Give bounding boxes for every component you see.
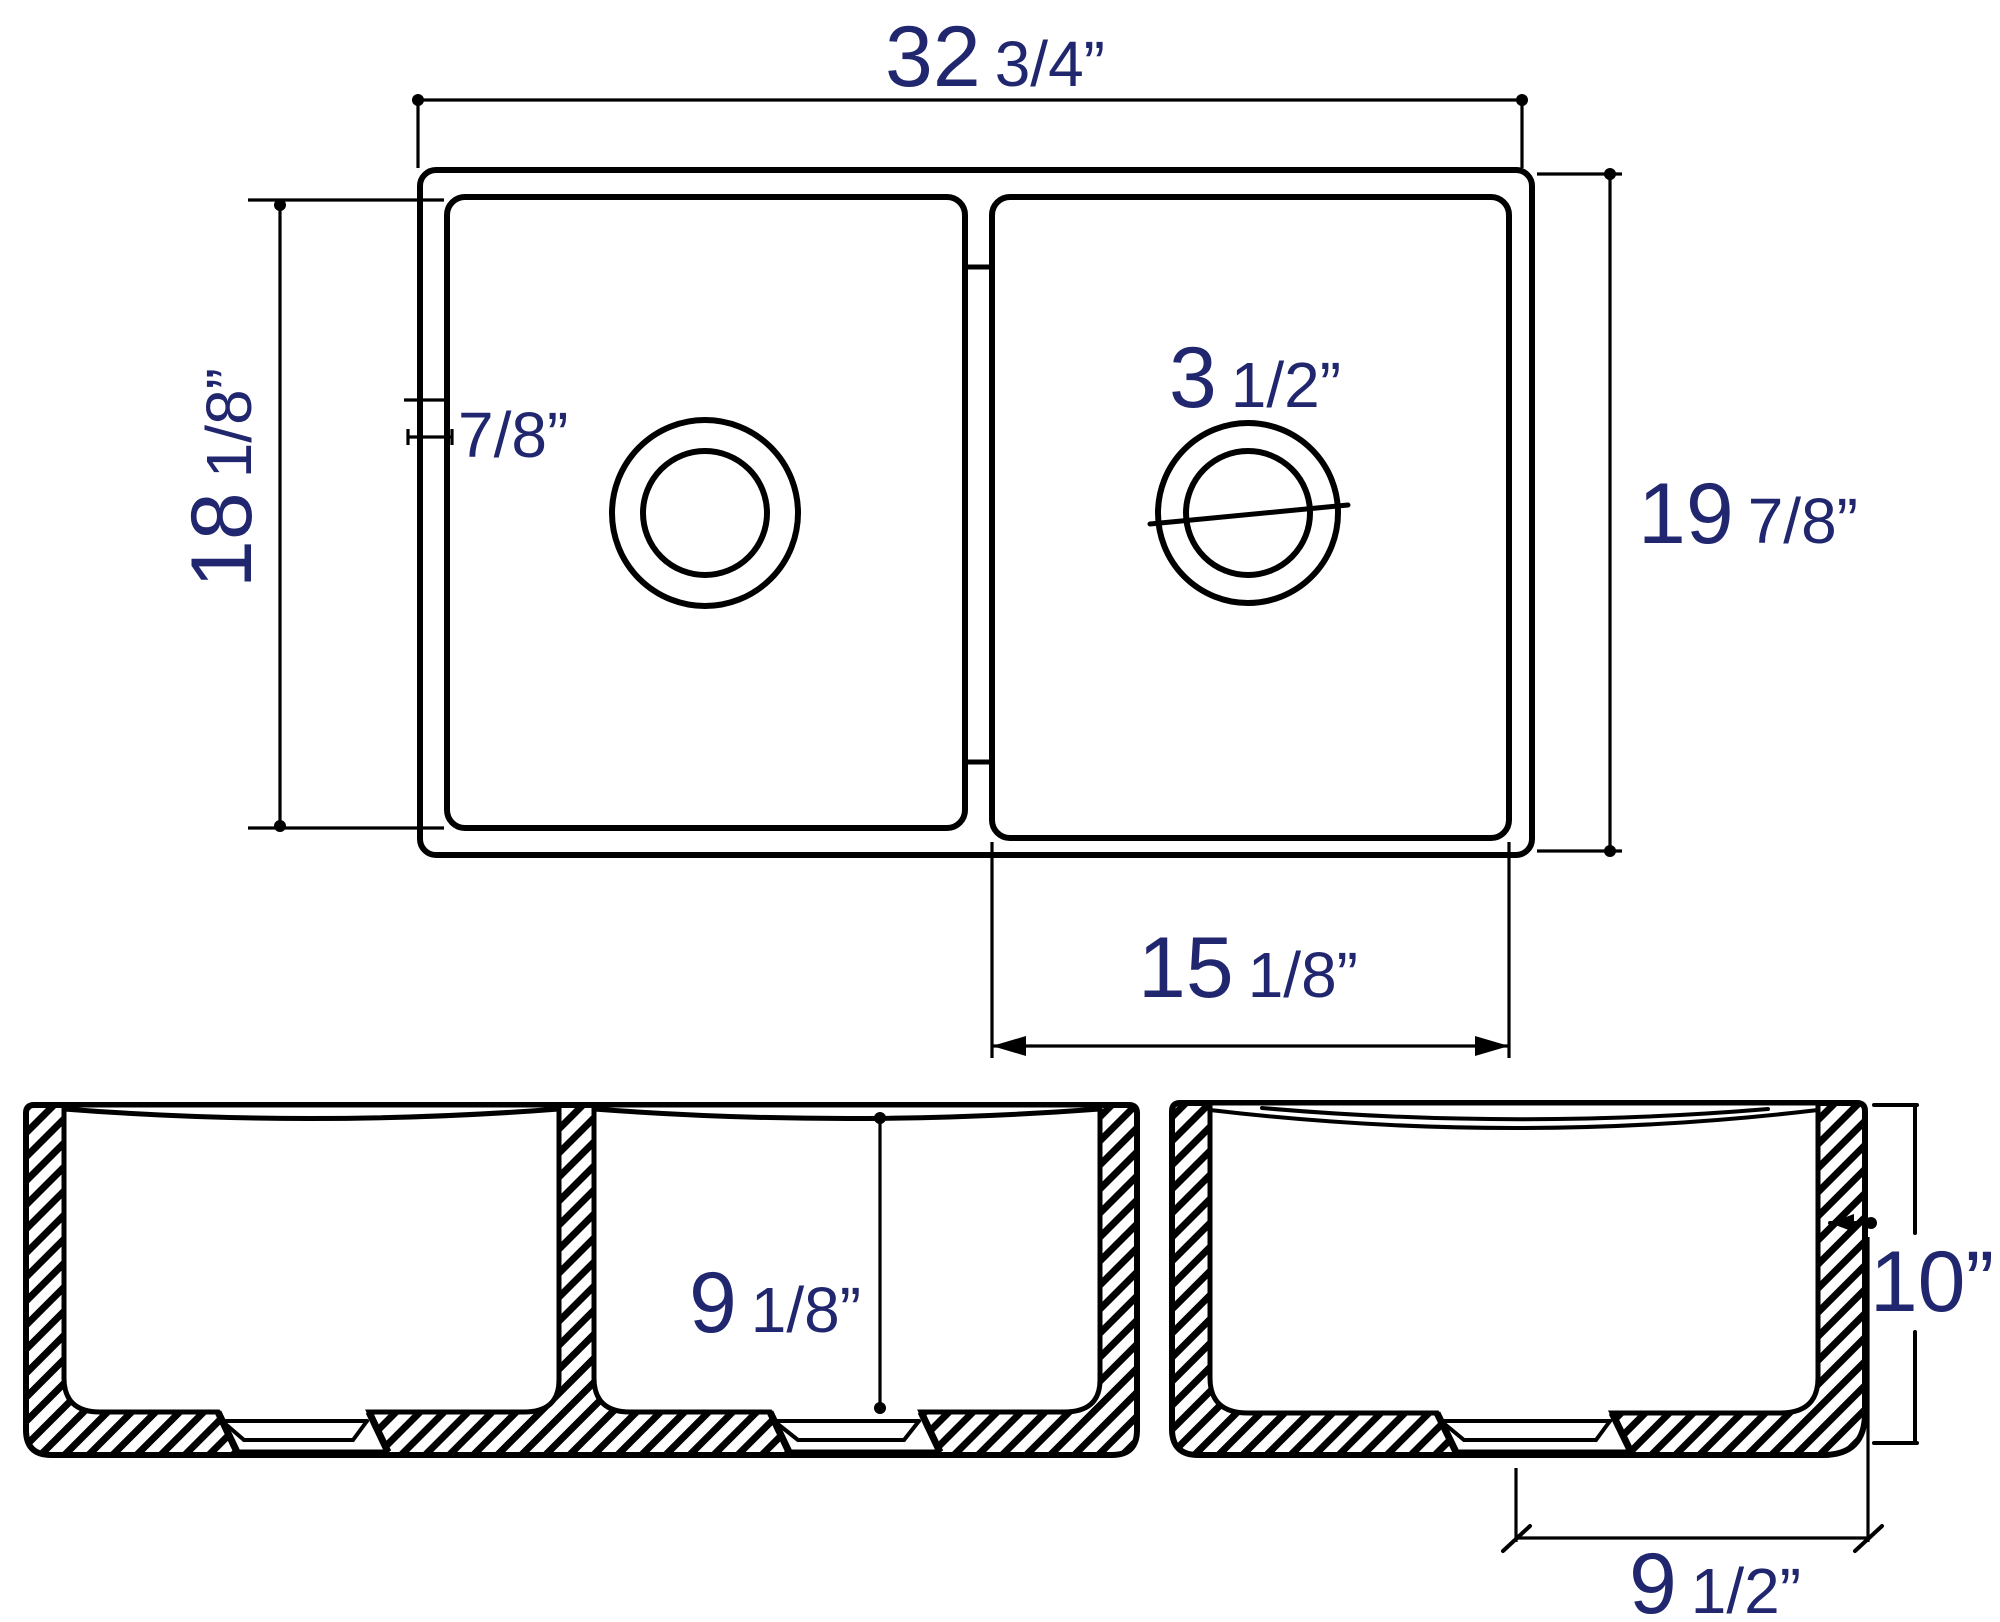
right-bowl-width-value: 15 (1138, 925, 1234, 1011)
right-bowl-width-label: 15 1/8” (1138, 925, 1358, 1011)
dim-overall-depth (1537, 168, 1622, 857)
sink-outer-rim (420, 170, 1532, 855)
overall-height-label: 10” (1870, 1239, 1994, 1325)
drain-diameter-value: 3 (1169, 335, 1217, 421)
base-flat-width-value: 9 (1629, 1541, 1677, 1622)
overall-depth-label: 19 7/8” (1638, 471, 1858, 557)
overall-depth-value: 19 (1638, 471, 1734, 557)
drawing-linework (0, 0, 2000, 1622)
left-bowl-length-label: 18 1/8” (179, 368, 265, 588)
drain-diameter-fraction: 1/2” (1231, 353, 1341, 417)
bowl-depth-fraction: 1/8” (751, 1278, 861, 1342)
left-bowl (447, 197, 965, 828)
overall-width-label: 32 3/4” (885, 14, 1105, 100)
left-bowl-length-value: 18 (179, 492, 265, 588)
base-flat-width-fraction: 1/2” (1691, 1559, 1801, 1622)
overall-width-value: 32 (885, 14, 981, 100)
overall-height-value: 10” (1870, 1239, 1994, 1325)
drain-diameter-label: 3 1/2” (1169, 335, 1341, 421)
overall-width-fraction: 3/4” (995, 32, 1105, 96)
drain-diameter-line (1150, 505, 1348, 524)
dim-left-bowl-length (248, 199, 444, 832)
bowl-depth-value: 9 (689, 1260, 737, 1346)
dim-overall-width (412, 94, 1528, 168)
left-bowl-length-fraction: 1/8” (197, 368, 261, 478)
rim-width-fraction: 7/8” (458, 403, 568, 467)
bowl-divider-lines (965, 267, 992, 762)
right-bowl-width-fraction: 1/8” (1248, 943, 1358, 1007)
sink-dimension-drawing: 32 3/4” 18 1/8” 7/8” 3 1/2” 19 7/8” 15 1… (0, 0, 2000, 1622)
front-section-view (26, 1105, 1137, 1455)
side-bowl-interior (1210, 1103, 1818, 1452)
rim-width-label: 7/8” (458, 403, 568, 467)
right-drain (1150, 423, 1348, 603)
overall-depth-fraction: 7/8” (1748, 489, 1858, 553)
left-drain (612, 420, 798, 606)
front-left-bowl-interior (64, 1105, 559, 1452)
top-view (248, 94, 1622, 1058)
right-bowl (992, 197, 1509, 838)
side-section-view (1172, 1103, 1917, 1551)
base-flat-width-label: 9 1/2” (1629, 1541, 1801, 1622)
bowl-depth-label: 9 1/8” (689, 1260, 861, 1346)
